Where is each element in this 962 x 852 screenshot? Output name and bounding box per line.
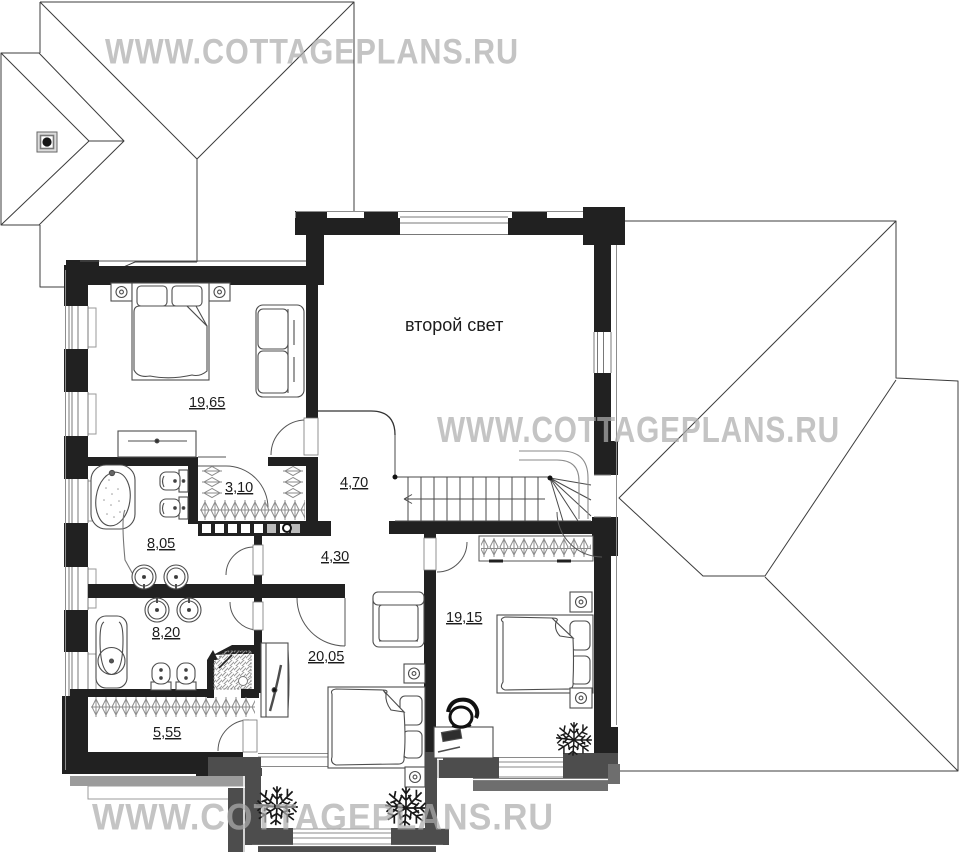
svg-text:20,05: 20,05 <box>308 649 344 665</box>
svg-text:4,30: 4,30 <box>321 549 349 565</box>
svg-text:19,15: 19,15 <box>446 610 482 626</box>
svg-text:WWW.COTTAGEPLANS.RU: WWW.COTTAGEPLANS.RU <box>105 33 519 72</box>
svg-text:4,70: 4,70 <box>340 475 368 491</box>
svg-text:3,10: 3,10 <box>225 480 253 496</box>
svg-text:8,05: 8,05 <box>147 536 175 552</box>
svg-text:5,55: 5,55 <box>153 725 181 741</box>
svg-text:второй свет: второй свет <box>405 315 503 335</box>
svg-text:19,65: 19,65 <box>189 395 225 411</box>
svg-text:WWW.COTTAGEPLANS.RU: WWW.COTTAGEPLANS.RU <box>437 409 840 450</box>
svg-text:WWW.COTTAGEPLANS.RU: WWW.COTTAGEPLANS.RU <box>92 796 554 838</box>
svg-text:8,20: 8,20 <box>152 625 180 641</box>
